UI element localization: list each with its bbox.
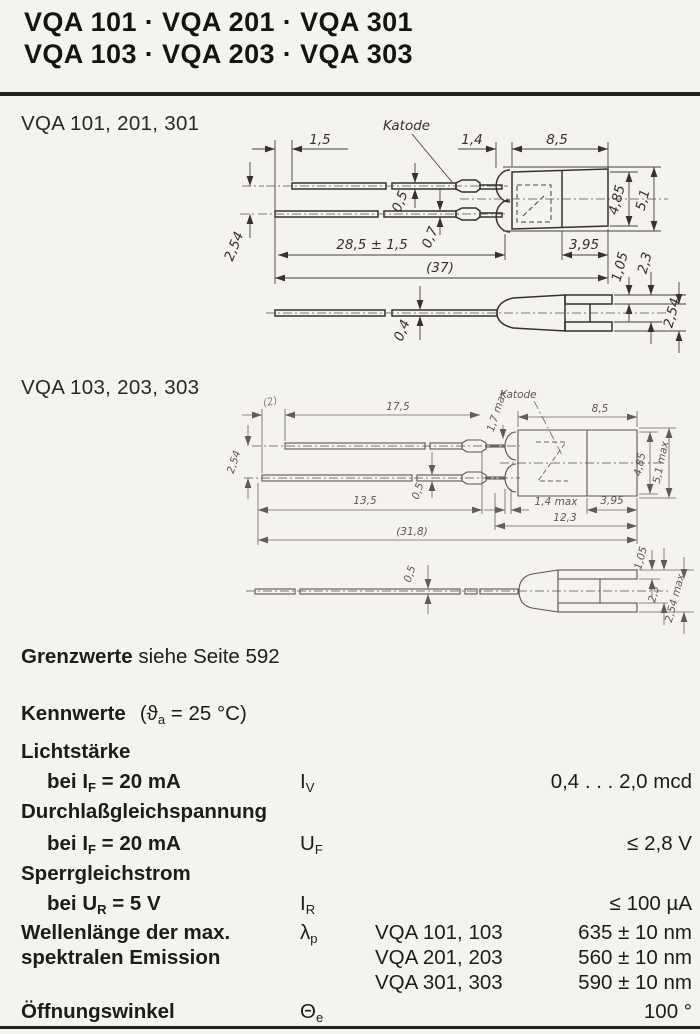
dim-body-total: 12,3 [553,512,576,524]
row-wellenlaenge-value-3: 590 ± 10 nm [578,971,692,995]
page-title: VQA 101 · VQA 201 · VQA 301 VQA 103 · VQ… [24,6,413,70]
kennwerte-title: Kennwerte [21,702,126,725]
kennwerte-condition-sub: a [158,712,165,727]
symbol-base: Θ [300,1000,316,1023]
kennwerte-heading: Kennwerte(ϑa = 25 °C) [21,702,247,727]
top-view-dimensions: Katode (2) 17,5 1,7 max 8,5 2,54 0,5 13 [225,388,676,545]
row-wellenlaenge-value-2: 560 ± 10 nm [578,946,692,970]
katode-label: Katode [383,118,430,134]
dim-lead-offset: 1,5 [309,132,330,148]
cond-pre: bei I [47,770,88,793]
dim-total-length: (31,8) [396,526,428,538]
dim-tab-pitch: 2,54 [661,296,684,329]
row-oeffnung-label: Öffnungswinkel [21,1000,175,1024]
cond-post: = 5 V [107,892,161,915]
row-wellenlaenge-label-line1: Wellenlänge der max. [21,921,230,945]
top-view-dimensions: Katode 1,5 2,54 28,5 ± 1,5 (37) 3,95 [221,118,661,284]
bottom-divider [0,1026,700,1029]
symbol-base: λ [300,921,310,944]
cond-pre: bei I [47,832,88,855]
row-durchlass-condition: bei IF = 20 mA [47,832,181,857]
dim-lead-thickness-bottom: 0,7 [419,224,442,250]
symbol-sub: F [315,842,323,857]
row-oeffnung-symbol: Θe [300,1000,323,1025]
dim-lead-offset: (2) [261,394,278,409]
row-oeffnung-value: 100 ° [644,1000,692,1024]
datasheet-page: VQA 101 · VQA 201 · VQA 301 VQA 103 · VQ… [0,0,700,1034]
row-lichtstaerke-value: 0,4 . . . 2,0 mcd [551,770,692,794]
title-divider [0,92,700,96]
row-wellenlaenge-label-line2: spektralen Emission [21,946,220,970]
row-sperr-condition: bei UR = 5 V [47,892,161,917]
row-sperr-value: ≤ 100 µA [610,892,692,916]
row-lichtstaerke-label: Lichtstärke [21,740,130,764]
dim-tab-offset: 1,05 [609,250,632,283]
dim-lead-pitch: 2,54 [221,230,247,264]
dim-body-length: 8,5 [592,403,609,415]
row-sperr-label: Sperrgleichstrom [21,862,191,886]
symbol-sub: p [310,931,317,946]
row-wellenlaenge-symbol: λp [300,921,317,946]
kennwerte-condition-pre: (ϑ [140,702,158,725]
row-wellenlaenge-types-1: VQA 101, 103 [375,921,503,945]
row-wellenlaenge-types-3: VQA 301, 303 [375,971,503,995]
dim-lead-length-bottom: 13,5 [353,495,377,507]
dim-body-length: 8,5 [546,132,567,148]
cond-sub: R [97,902,106,917]
cond-sub: F [88,780,96,795]
top-view-leads [258,180,508,220]
cond-sub: F [88,842,96,857]
grenzwerte-label: Grenzwerte [21,645,133,668]
grenzwerte-text: siehe Seite 592 [138,645,279,668]
dim-tab-offset: 1,05 [632,545,650,571]
title-line-2: VQA 103 · VQA 203 · VQA 303 [24,38,413,70]
symbol-sub: e [316,1010,323,1025]
dim-lead-pitch: 2,54 [225,449,244,475]
dim-tab-span: 2,3 [646,585,662,604]
side-view [246,570,668,612]
cond-pre: bei U [47,892,97,915]
dimension-drawing-vqa103: Katode (2) 17,5 1,7 max 8,5 2,54 0,5 13 [0,385,700,640]
dim-body-dia-outer: 5,1 max [651,439,672,484]
row-sperr-symbol: IR [300,892,315,917]
symbol-base: U [300,832,315,855]
dim-body-back-length: 3,95 [600,495,624,507]
dim-lead-length: 28,5 ± 1,5 [336,237,407,253]
side-view [266,295,668,331]
row-durchlass-symbol: UF [300,832,323,857]
dim-crimp-width: 1,7 max [485,388,510,433]
dim-flange-width: 1,4 max [535,496,579,508]
symbol-sub: V [306,780,315,795]
dim-body-dia-inner: 4,85 [606,183,629,216]
dim-body-dia-outer: 5,1 [633,188,654,213]
dim-tab-span: 2,3 [635,251,656,276]
dim-lead-thickness: 0,5 [410,481,427,501]
dim-total-length: (37) [426,260,454,276]
dimension-drawing-vqa101: Katode 1,5 2,54 28,5 ± 1,5 (37) 3,95 [0,108,700,370]
row-wellenlaenge-types-2: VQA 201, 203 [375,946,503,970]
dim-lead-length-top: 17,5 [386,401,410,413]
kennwerte-condition-post: = 25 °C) [165,702,247,725]
dim-body-back-length: 3,95 [569,237,599,253]
dim-lead-thickness-side: 0,5 [402,564,419,584]
dim-body-dia-inner: 4,85 [632,451,649,477]
row-lichtstaerke-condition: bei IF = 20 mA [47,770,181,795]
row-lichtstaerke-symbol: IV [300,770,314,795]
cond-post: = 20 mA [96,832,181,855]
symbol-sub: R [306,902,315,917]
row-wellenlaenge-value-1: 635 ± 10 nm [578,921,692,945]
grenzwerte-note: Grenzwerte siehe Seite 592 [21,645,280,669]
dim-lead-thickness-side: 0,4 [391,318,414,344]
title-line-1: VQA 101 · VQA 201 · VQA 301 [24,6,413,38]
row-durchlass-value: ≤ 2,8 V [627,832,692,856]
kennwerte-condition: (ϑa = 25 °C) [140,702,247,725]
dim-flange-width: 1,4 [461,132,482,148]
row-durchlass-label: Durchlaßgleichspannung [21,800,267,824]
cond-post: = 20 mA [96,770,181,793]
